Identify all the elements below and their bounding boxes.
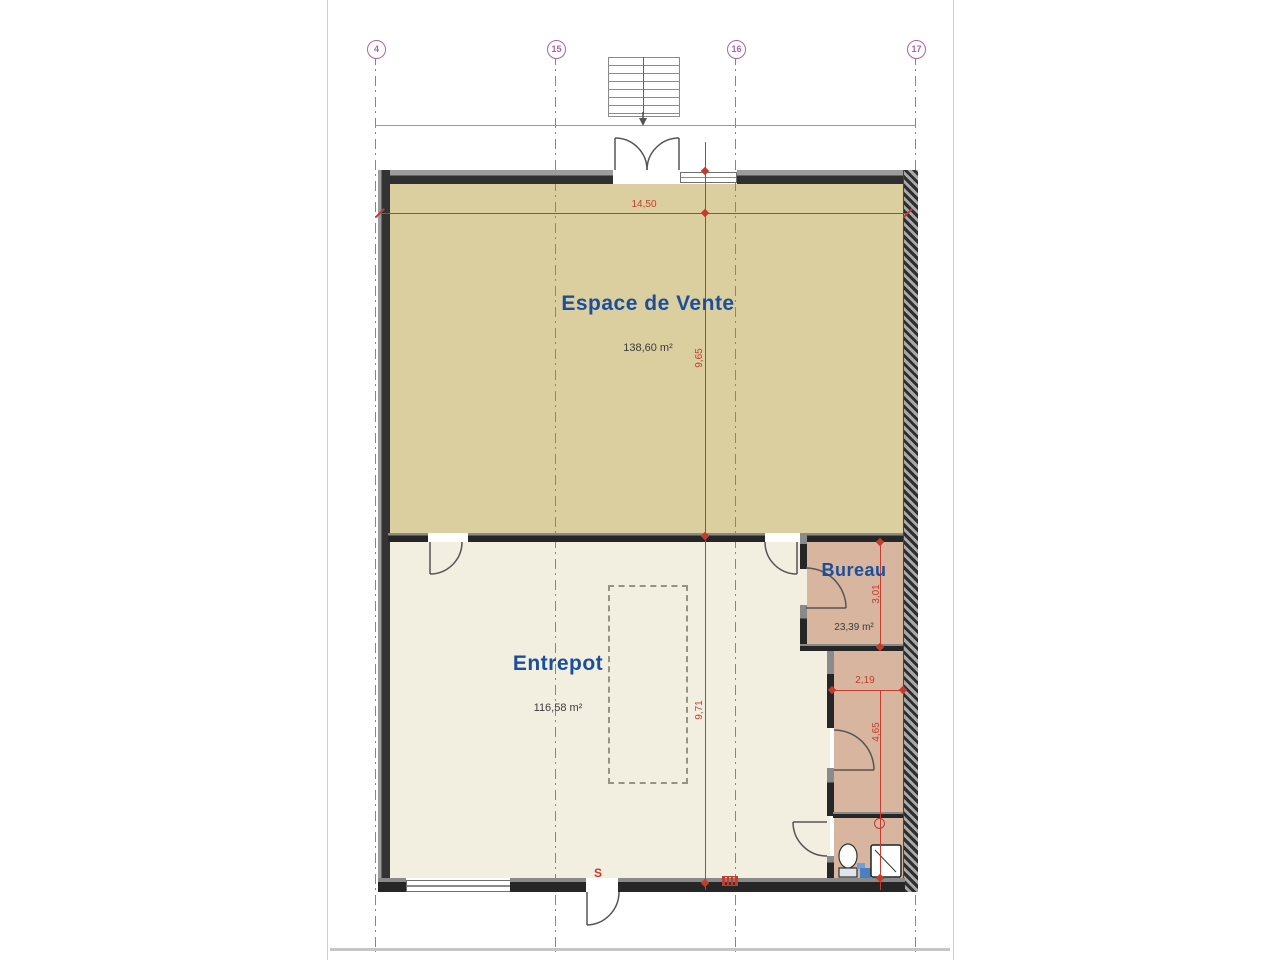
door-arc [587,892,619,925]
dimension-overall-width: 14,50 [584,199,704,210]
dimension-line-depth [705,142,706,890]
dimension-line-width [380,213,908,214]
dimension-circle-marker [874,818,885,829]
door-arc [430,542,462,574]
toilet-icon [839,844,857,877]
sink-icon [857,863,871,878]
door-arc [615,138,647,170]
dimension-warehouse-depth: 9,71 [694,680,706,740]
dimension-line-hall-width [832,690,905,691]
room-label-office: Bureau [810,560,898,581]
room-area-sales: 138,60 m² [568,342,728,354]
room-label-warehouse: Entrepot [468,652,648,676]
dimension-note-mark [722,876,738,886]
plan-graphics [0,0,1280,960]
door-arc [793,822,827,856]
exit-label: S [594,866,602,880]
stairs-arrow [639,112,647,126]
dimension-hall-depth: 4,65 [871,702,883,762]
shower-icon [871,845,901,877]
door-arc [834,730,874,770]
floor-plan-canvas: 4 15 16 17 [0,0,1280,960]
door-arc [647,138,679,170]
room-label-sales: Espace de Vente [518,292,778,316]
room-area-office: 23,39 m² [816,622,892,633]
room-area-warehouse: 116,58 m² [498,702,618,714]
dimension-hall-width: 2,19 [830,675,900,686]
door-arc [765,542,797,574]
dimension-sales-depth: 9,65 [694,328,706,388]
